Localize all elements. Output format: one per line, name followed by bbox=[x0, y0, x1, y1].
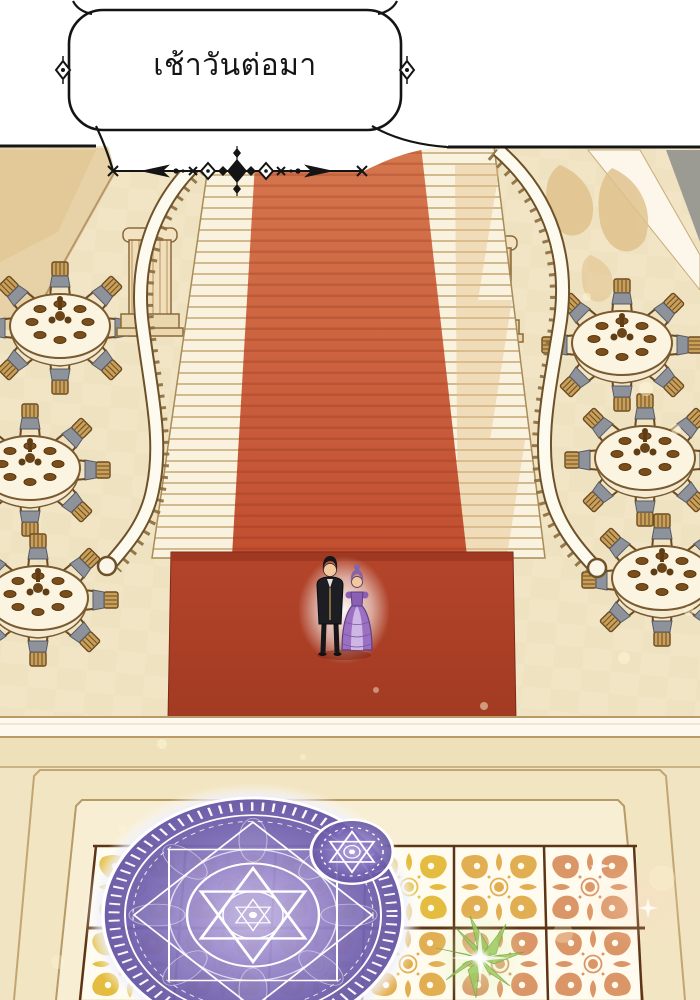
ballroom-scene bbox=[0, 146, 700, 1000]
scene-art bbox=[0, 0, 700, 1000]
satellite-circle bbox=[311, 820, 393, 884]
webtoon-panel: เช้าวันต่อมา bbox=[0, 0, 700, 1000]
noble-couple bbox=[298, 556, 390, 664]
caption-text: เช้าวันต่อมา bbox=[85, 46, 385, 86]
